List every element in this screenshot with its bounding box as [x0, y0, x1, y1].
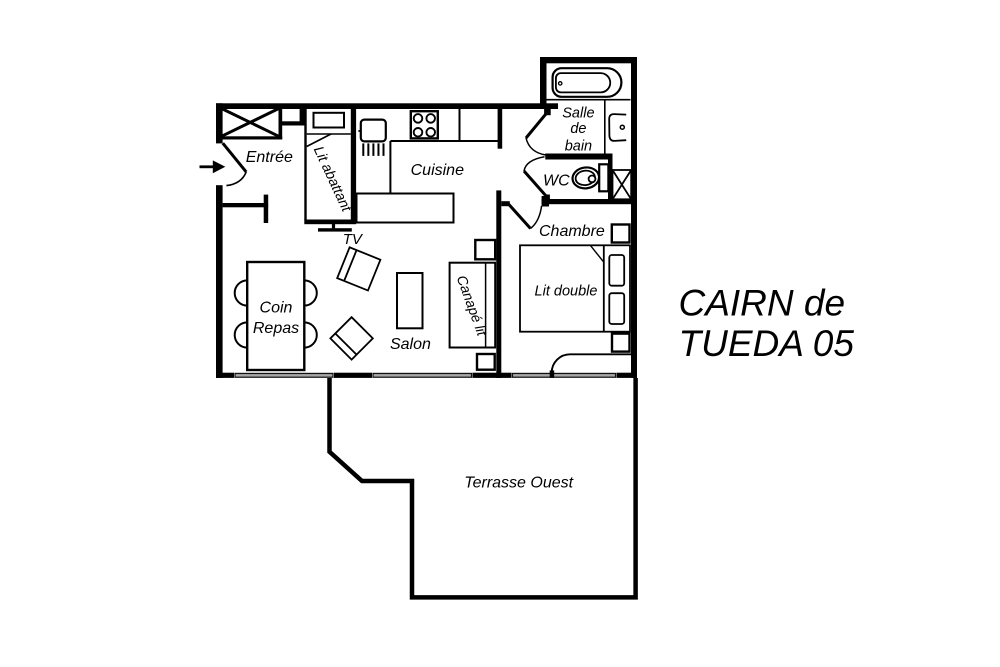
- svg-text:TV: TV: [343, 231, 364, 248]
- svg-text:CAIRN de: CAIRN de: [679, 283, 846, 324]
- svg-text:Salle: Salle: [562, 105, 594, 121]
- svg-text:TUEDA 05: TUEDA 05: [679, 323, 855, 364]
- svg-text:Coin: Coin: [260, 300, 293, 317]
- svg-text:de: de: [570, 121, 586, 137]
- svg-text:Repas: Repas: [253, 320, 299, 337]
- svg-text:Terrasse Ouest: Terrasse Ouest: [464, 475, 573, 492]
- svg-text:WC: WC: [543, 173, 570, 190]
- svg-text:Cuisine: Cuisine: [411, 162, 464, 179]
- svg-text:Lit double: Lit double: [535, 284, 598, 300]
- svg-text:Entrée: Entrée: [246, 149, 293, 166]
- svg-text:Salon: Salon: [390, 336, 431, 353]
- svg-text:Chambre: Chambre: [539, 223, 605, 240]
- svg-text:bain: bain: [565, 138, 592, 154]
